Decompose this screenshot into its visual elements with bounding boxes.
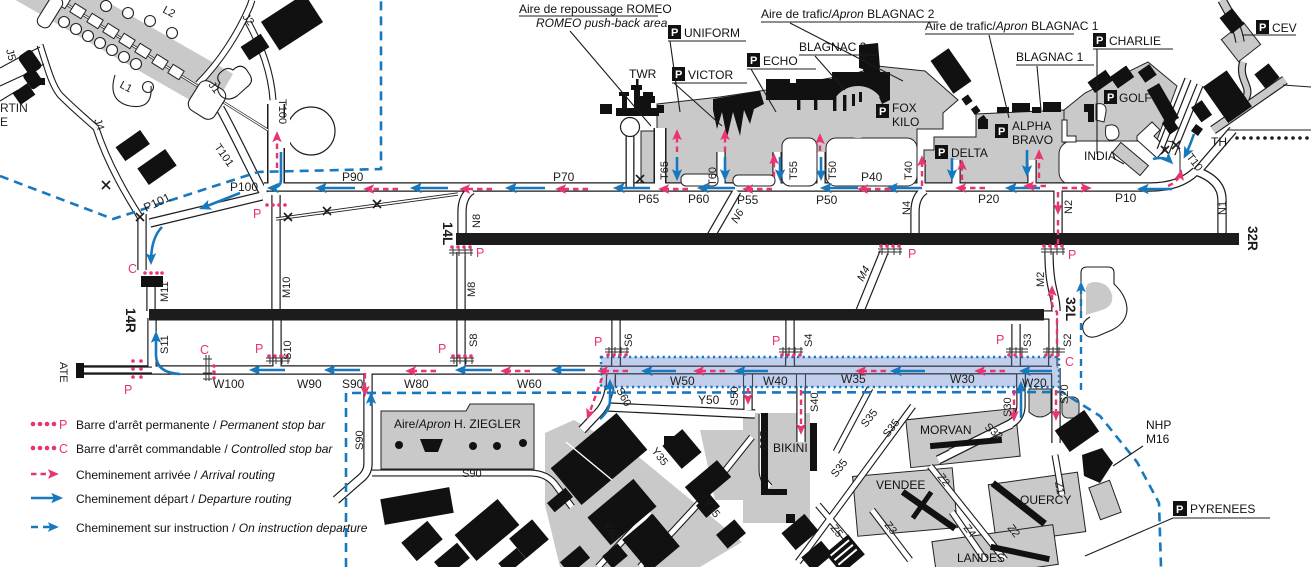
- svg-text:P: P: [675, 69, 682, 81]
- svg-text:BRAVO: BRAVO: [1012, 133, 1053, 147]
- svg-text:Aire/Apron H. ZIEGLER: Aire/Apron H. ZIEGLER: [394, 417, 521, 431]
- svg-text:S30: S30: [1002, 397, 1014, 417]
- svg-text:RTIN: RTIN: [0, 101, 28, 115]
- svg-text:14L: 14L: [440, 222, 455, 245]
- svg-text:NHP: NHP: [1146, 418, 1171, 432]
- svg-text:P60: P60: [688, 192, 710, 206]
- svg-text:DELTA: DELTA: [951, 146, 988, 160]
- svg-text:P: P: [879, 106, 886, 118]
- svg-text:N4: N4: [901, 201, 913, 215]
- svg-text:C: C: [59, 442, 68, 456]
- svg-text:Cheminement départ / Departure: Cheminement départ / Departure routing: [76, 492, 292, 506]
- svg-text:W80: W80: [404, 377, 429, 391]
- svg-text:E: E: [0, 115, 8, 129]
- svg-text:P65: P65: [638, 192, 660, 206]
- svg-text:P: P: [1096, 35, 1103, 47]
- svg-text:W60: W60: [517, 377, 542, 391]
- svg-text:T100: T100: [276, 99, 288, 124]
- svg-text:W35: W35: [841, 372, 866, 386]
- svg-text:VENDEE: VENDEE: [876, 478, 925, 492]
- svg-text:GOLF: GOLF: [1119, 91, 1152, 105]
- svg-text:MORVAN: MORVAN: [920, 423, 972, 437]
- svg-text:P: P: [938, 147, 945, 159]
- svg-text:P100: P100: [230, 180, 258, 194]
- svg-text:ATE: ATE: [57, 362, 69, 383]
- svg-text:N8: N8: [471, 214, 483, 228]
- svg-text:32L: 32L: [1063, 297, 1079, 322]
- svg-text:S20: S20: [1059, 384, 1071, 404]
- svg-text:M11: M11: [159, 281, 171, 302]
- svg-text:P: P: [1107, 92, 1114, 104]
- svg-text:P70: P70: [553, 170, 575, 184]
- svg-text:P90: P90: [342, 170, 364, 184]
- svg-text:P20: P20: [978, 192, 1000, 206]
- svg-text:BLAGNAC 2: BLAGNAC 2: [799, 40, 867, 54]
- svg-text:W20: W20: [1022, 376, 1047, 390]
- svg-text:PYRENEES: PYRENEES: [1190, 502, 1255, 516]
- svg-text:P: P: [255, 342, 263, 356]
- svg-text:Cheminement arrivée / Arrival: Cheminement arrivée / Arrival routing: [76, 468, 275, 482]
- svg-text:Y50: Y50: [698, 393, 720, 407]
- svg-text:P: P: [671, 27, 678, 39]
- svg-text:TWR: TWR: [629, 67, 657, 81]
- svg-text:Aire de repoussage ROMEO: Aire de repoussage ROMEO: [519, 2, 672, 16]
- svg-text:Cheminement sur instruction /: Cheminement sur instruction / On instruc…: [76, 521, 368, 535]
- svg-text:C: C: [200, 343, 209, 357]
- svg-text:M16: M16: [1146, 432, 1170, 446]
- svg-text:S90: S90: [462, 468, 482, 480]
- svg-text:W50: W50: [670, 374, 695, 388]
- svg-text:P10: P10: [1115, 191, 1137, 205]
- svg-text:P: P: [438, 342, 446, 356]
- svg-text:T40: T40: [903, 161, 915, 180]
- svg-text:BLAGNAC 1: BLAGNAC 1: [1016, 50, 1084, 64]
- svg-text:W90: W90: [297, 377, 322, 391]
- svg-text:N1: N1: [1217, 201, 1229, 215]
- svg-text:S50: S50: [729, 386, 741, 406]
- svg-text:N2: N2: [1063, 200, 1075, 214]
- svg-text:P: P: [59, 418, 67, 432]
- svg-text:FOX: FOX: [892, 101, 917, 115]
- svg-text:QUERCY: QUERCY: [1020, 493, 1071, 507]
- svg-text:ROMEO push-back area: ROMEO push-back area: [536, 16, 668, 30]
- svg-text:S6: S6: [623, 334, 635, 347]
- svg-text:P: P: [1068, 248, 1076, 262]
- svg-text:T55: T55: [788, 161, 800, 180]
- svg-text:VICTOR: VICTOR: [688, 68, 733, 82]
- svg-text:P: P: [1176, 504, 1183, 516]
- svg-text:P40: P40: [861, 170, 883, 184]
- svg-text:S2: S2: [1062, 334, 1074, 347]
- svg-text:CEV: CEV: [1272, 21, 1297, 35]
- svg-text:P: P: [476, 246, 484, 260]
- svg-text:CHARLIE: CHARLIE: [1109, 34, 1161, 48]
- svg-text:T60: T60: [707, 167, 719, 186]
- svg-text:C: C: [1065, 355, 1074, 369]
- svg-text:S4: S4: [803, 334, 815, 347]
- svg-text:M2: M2: [1035, 272, 1047, 287]
- svg-text:S90: S90: [354, 430, 366, 450]
- svg-text:Aire de trafic/Apron BLAGNAC: Aire de trafic/Apron BLAGNAC 2: [761, 7, 935, 21]
- svg-text:S40: S40: [809, 392, 821, 412]
- svg-text:P: P: [772, 334, 780, 348]
- svg-text:M8: M8: [466, 282, 478, 297]
- svg-text:P: P: [750, 55, 757, 67]
- svg-text:P50: P50: [816, 193, 838, 207]
- svg-text:Aire de trafic/Apron BLAGNAC: Aire de trafic/Apron BLAGNAC 1: [925, 19, 1099, 33]
- svg-text:P: P: [996, 333, 1004, 347]
- svg-text:M10: M10: [281, 277, 293, 298]
- svg-text:Barre d'arrêt commandable / Co: Barre d'arrêt commandable / Controlled s…: [76, 442, 333, 456]
- svg-text:UNIFORM: UNIFORM: [684, 26, 740, 40]
- svg-text:KILO: KILO: [892, 115, 919, 129]
- svg-text:S8: S8: [468, 334, 480, 347]
- svg-text:S11: S11: [159, 335, 171, 354]
- svg-text:BIKINI: BIKINI: [773, 441, 808, 455]
- svg-text:P: P: [253, 207, 261, 221]
- svg-text:P: P: [594, 335, 602, 349]
- svg-text:T50: T50: [827, 161, 839, 180]
- svg-text:INDIA: INDIA: [1084, 149, 1116, 163]
- svg-text:Barre d'arrêt permanente / Per: Barre d'arrêt permanente / Permanent sto…: [76, 418, 326, 432]
- svg-text:S50: S50: [757, 430, 769, 450]
- svg-text:S10: S10: [282, 340, 294, 360]
- svg-text:S3: S3: [1022, 334, 1034, 347]
- svg-text:32R: 32R: [1245, 226, 1260, 251]
- svg-text:P: P: [908, 247, 916, 261]
- svg-text:P55: P55: [737, 193, 759, 207]
- svg-text:C: C: [128, 262, 137, 276]
- svg-text:LANDES: LANDES: [957, 551, 1005, 565]
- svg-text:TH: TH: [1211, 135, 1227, 149]
- svg-text:P: P: [998, 126, 1005, 138]
- svg-text:P: P: [124, 383, 132, 397]
- svg-text:14R: 14R: [123, 308, 138, 333]
- svg-text:P: P: [1259, 22, 1266, 34]
- svg-text:W40: W40: [763, 374, 788, 388]
- svg-text:W100: W100: [213, 377, 245, 391]
- svg-text:ALPHA: ALPHA: [1012, 119, 1051, 133]
- svg-text:ECHO: ECHO: [763, 54, 798, 68]
- svg-text:W30: W30: [950, 372, 975, 386]
- svg-text:T65: T65: [659, 161, 671, 180]
- svg-text:S90: S90: [342, 377, 364, 391]
